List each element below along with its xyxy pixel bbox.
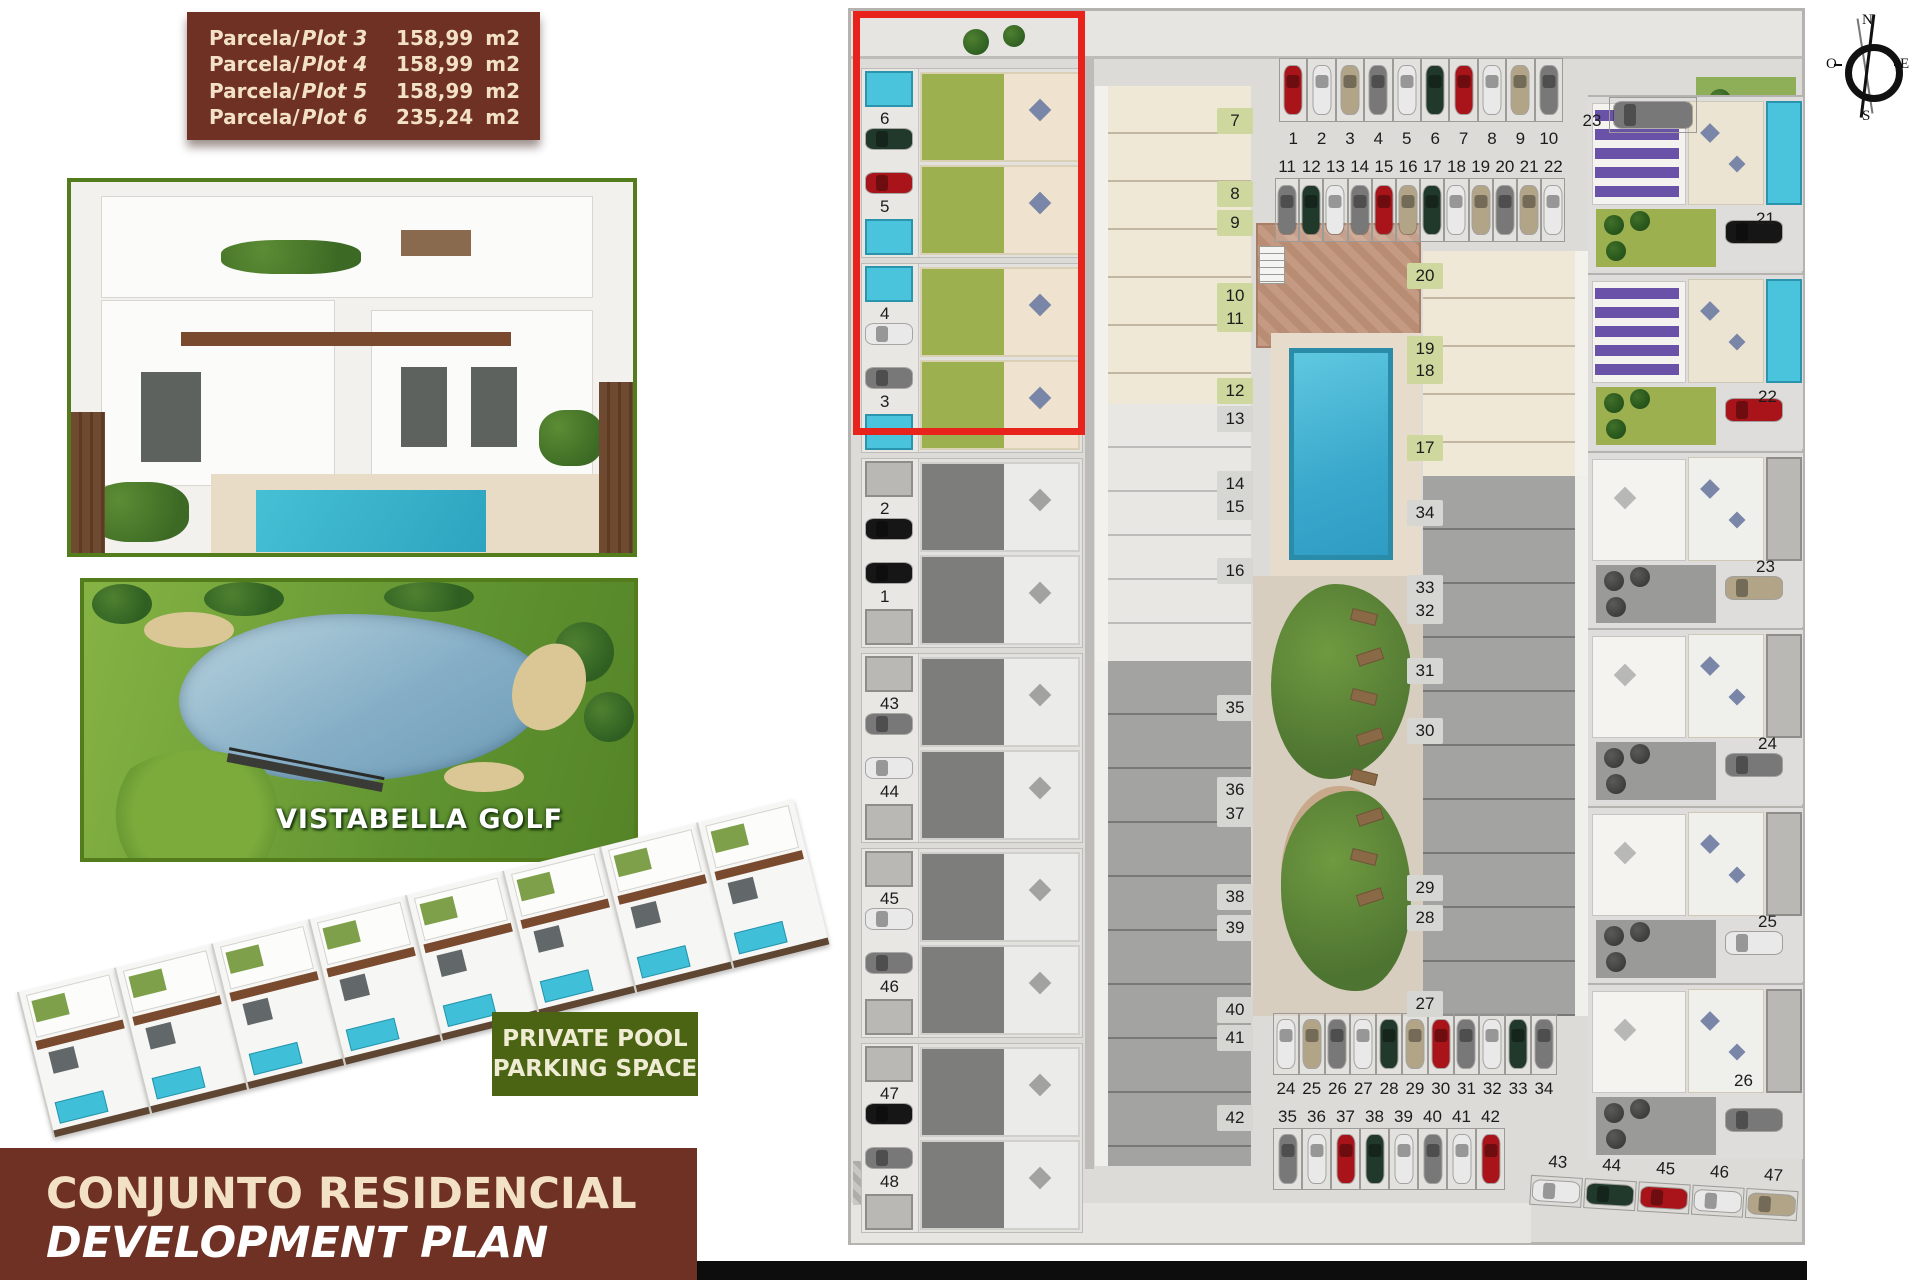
unit-building (920, 1047, 1080, 1137)
parking-stall (1421, 58, 1449, 122)
tree-icon (1606, 774, 1626, 794)
parking-stall (1331, 1128, 1360, 1190)
car-icon (1355, 1020, 1372, 1068)
car-icon (1453, 1135, 1470, 1183)
plot-number: 6 (880, 109, 889, 129)
tree-icon (1606, 241, 1626, 261)
plot-number: 43 (880, 694, 899, 714)
plot-size-unit: m2 (485, 79, 520, 104)
plot-number: 47 (880, 1084, 899, 1104)
parking-number: 2 (1307, 129, 1335, 149)
title-block: CONJUNTO RESIDENCIAL DEVELOPMENT PLAN (0, 1148, 697, 1280)
car-icon (1694, 1190, 1741, 1213)
plot-pool (865, 851, 913, 887)
sand-bunker (444, 762, 524, 792)
table-icon (1614, 664, 1637, 687)
villa-roof (1592, 281, 1686, 383)
parking-number: 23 (1577, 111, 1607, 131)
plot-size-value: 158,99 (396, 79, 473, 104)
table-icon (1700, 301, 1720, 321)
tree-icon (1630, 1099, 1650, 1119)
parking-stall (1493, 178, 1517, 242)
table-icon (1028, 1074, 1051, 1097)
plot-size-value: 235,24 (396, 105, 473, 130)
table-icon (1729, 867, 1746, 884)
brown-fence (71, 412, 105, 557)
parking-number: 3 (1336, 129, 1364, 149)
roof-garden (922, 464, 1004, 550)
shrub-area (1271, 584, 1411, 779)
car-icon (1448, 186, 1465, 234)
parking-stall (1307, 58, 1335, 122)
legend-row: Parcela/Plot 3158,99m2 (209, 26, 520, 51)
parking-number: 42 (1476, 1107, 1505, 1127)
plot-number: 28 (1407, 905, 1443, 931)
aerial-window (339, 974, 370, 1002)
palm-tree (539, 410, 603, 466)
car-icon (1472, 186, 1489, 234)
plot-pool (865, 1046, 913, 1082)
parking-number: 7 (1449, 129, 1477, 149)
plot-number: 18 (1407, 358, 1443, 384)
badge-line2: PARKING SPACE (493, 1056, 697, 1082)
pergola-slats (1595, 364, 1679, 375)
pergola-slats (1595, 148, 1679, 159)
table-icon (1028, 582, 1051, 605)
villa-roof (1592, 991, 1686, 1093)
parking-stall (1478, 58, 1506, 122)
tree-icon (1630, 211, 1650, 231)
parking-number: 20 (1493, 157, 1517, 177)
roof-garden (922, 854, 1004, 940)
car-icon (1279, 186, 1296, 234)
parking-number: 16 (1396, 157, 1420, 177)
tree-icon (1606, 952, 1626, 972)
pergola-slats (1595, 326, 1679, 337)
parking-row-43-47: 4344454647 (1527, 1151, 1803, 1241)
plot-number: 27 (1407, 991, 1443, 1017)
parking-number: 33 (1505, 1079, 1531, 1099)
plot-garden (1596, 742, 1716, 800)
plot-number: 26 (1734, 1071, 1753, 1091)
aerial-window (145, 1022, 176, 1050)
parking-number: 19 (1469, 157, 1493, 177)
parking-number: 43 (1530, 1151, 1585, 1174)
tree-icon (204, 582, 284, 616)
communal-pool (1289, 348, 1393, 560)
aerial-window (728, 877, 759, 905)
pergola-slats (1595, 167, 1679, 178)
parking-space: 47 (1743, 1164, 1801, 1241)
legend-row: Parcela/Plot 4158,99m2 (209, 52, 520, 77)
car-icon (866, 519, 912, 539)
parking-stall (1350, 1013, 1376, 1075)
golf-course-photo: VISTABELLA GOLF (80, 578, 638, 862)
parking-stall (1360, 1128, 1389, 1190)
parking-stall (1323, 178, 1347, 242)
bottom-black-strip (697, 1261, 1807, 1280)
plot-number: 23 (1756, 557, 1775, 577)
parking-number: 38 (1360, 1107, 1389, 1127)
car-icon (1540, 66, 1557, 114)
villa-render-photo (67, 178, 637, 557)
plot-number: 12 (1217, 378, 1253, 404)
compass-west: O (1826, 56, 1837, 73)
car-icon (1726, 1109, 1782, 1131)
parking-stall (1299, 178, 1323, 242)
aerial-window (533, 925, 564, 953)
parking-number: 39 (1389, 1107, 1418, 1127)
roof-furniture (401, 230, 471, 256)
villa-terrace (1688, 101, 1764, 205)
legend-row: Parcela/Plot 6235,24m2 (209, 105, 520, 130)
parking-stall (1745, 1188, 1799, 1221)
parking-stall (1336, 58, 1364, 122)
aerial-window (48, 1046, 79, 1074)
roof-terrace (1004, 752, 1078, 838)
aerial-window (436, 949, 467, 977)
roof-terrace (1004, 557, 1078, 643)
car-icon (1726, 932, 1782, 954)
car-icon (1351, 186, 1368, 234)
car-icon (866, 714, 912, 734)
roof-terrace (1004, 659, 1078, 745)
plot-pool (865, 656, 913, 692)
car-icon (1726, 577, 1782, 599)
table-icon (1700, 1011, 1720, 1031)
row-houses-27-34 (1423, 476, 1588, 1016)
tree-icon (1606, 597, 1626, 617)
plot-pool (1766, 634, 1802, 738)
parking-number: 5 (1393, 129, 1421, 149)
villa-26: 26 (1588, 983, 1803, 1159)
parking-stall (1609, 97, 1697, 133)
tree-icon (1630, 744, 1650, 764)
parking-number: 30 (1428, 1079, 1454, 1099)
parking-number: 45 (1638, 1157, 1693, 1180)
parking-space: 46 (1689, 1161, 1747, 1238)
villa-22: 22 (1588, 273, 1803, 449)
parking-number: 9 (1506, 129, 1534, 149)
unit-building (920, 852, 1080, 942)
table-icon (1700, 123, 1720, 143)
stone-pillar (335, 332, 373, 484)
plot-pool (1766, 812, 1802, 916)
parking-stall (1517, 178, 1541, 242)
parking-number: 8 (1478, 129, 1506, 149)
car-icon (1640, 1187, 1687, 1210)
parking-number: 4 (1364, 129, 1392, 149)
driveway-strip: 21 (862, 459, 919, 647)
plot-pool (1766, 279, 1802, 383)
plot-number: 2 (880, 499, 889, 519)
plot-label: Parcela/ (209, 52, 300, 77)
car-icon (1521, 186, 1538, 234)
plot-size-unit: m2 (485, 52, 520, 77)
car-icon (866, 758, 912, 778)
villa-terrace (1688, 634, 1764, 738)
plot-garden (1596, 565, 1716, 623)
car-icon (1303, 1020, 1320, 1068)
car-icon (866, 953, 912, 973)
car-icon (1512, 66, 1529, 114)
plot-pool (865, 461, 913, 497)
unit-building (920, 462, 1080, 552)
parking-stall (1325, 1013, 1351, 1075)
roof-terrace (1004, 947, 1078, 1033)
plot-size-unit: m2 (485, 26, 520, 51)
parking-number: 25 (1299, 1079, 1325, 1099)
plot-pool (865, 804, 913, 840)
parking-number: 40 (1418, 1107, 1447, 1127)
plot-number: 31 (1407, 658, 1443, 684)
parking-number: 24 (1273, 1079, 1299, 1099)
golf-course-label: VISTABELLA GOLF (276, 804, 563, 835)
plot-number: 9 (1217, 210, 1253, 236)
parking-space: 43 (1527, 1151, 1585, 1228)
site-plan: 6543214344454647487891011121314151635363… (848, 8, 1805, 1245)
table-icon (1700, 479, 1720, 499)
compass-rose: N S E O (1826, 12, 1910, 124)
window (141, 372, 201, 462)
plot-number: 22 (1758, 387, 1777, 407)
table-icon (1729, 689, 1746, 706)
car-icon (1533, 1180, 1580, 1203)
compass-north: N (1862, 12, 1873, 29)
car-icon (1424, 1135, 1441, 1183)
parking-number: 18 (1444, 157, 1468, 177)
roof-garden (922, 947, 1004, 1033)
parking-number: 14 (1348, 157, 1372, 177)
plot-number: 45 (880, 889, 899, 909)
row-houses-17-20 (1423, 251, 1588, 476)
car-icon (1586, 1183, 1633, 1206)
title-english: DEVELOPMENT PLAN (46, 1218, 697, 1268)
car-icon (1381, 1020, 1398, 1068)
parking-number: 6 (1421, 129, 1449, 149)
roof-terrace (1004, 464, 1078, 550)
parking-number: 36 (1302, 1107, 1331, 1127)
aerial-window (242, 998, 273, 1026)
plot-size-table: Parcela/Plot 3158,99m2Parcela/Plot 4158,… (187, 12, 540, 140)
plot-size-value: 158,99 (396, 52, 473, 77)
car-icon (1398, 66, 1415, 114)
plot-number: 37 (1217, 801, 1253, 827)
car-icon (1482, 1135, 1499, 1183)
plot-label: Parcela/ (209, 26, 300, 51)
table-icon (1028, 777, 1051, 800)
parking-stall (1541, 178, 1565, 242)
car-icon (1277, 1020, 1294, 1068)
plot-number: 21 (1756, 209, 1775, 229)
table-icon (1729, 512, 1746, 529)
row-houses-13-16 (1095, 404, 1251, 661)
table-icon (1729, 156, 1746, 173)
car-icon (1496, 186, 1513, 234)
shrub-area (1281, 791, 1411, 991)
table-icon (1700, 834, 1720, 854)
plot-size-unit: m2 (485, 105, 520, 130)
parking-stall (1364, 58, 1392, 122)
car-icon (866, 909, 912, 929)
parking-stall (1372, 178, 1396, 242)
tree-icon (1606, 1129, 1626, 1149)
table-icon (1614, 1019, 1637, 1042)
parking-stall (1469, 178, 1493, 242)
unit-building (920, 1140, 1080, 1230)
villa-roof (1592, 459, 1686, 561)
highlight-plots-3-6 (853, 11, 1085, 435)
unit-building (920, 945, 1080, 1035)
plot-number: 30 (1407, 718, 1443, 744)
plot-garden (1596, 387, 1716, 445)
villa-25: 25 (1588, 806, 1803, 982)
villa-left-volume (101, 300, 335, 486)
car-icon (1424, 186, 1441, 234)
parking-stall (1505, 1013, 1531, 1075)
parking-stall (1476, 1128, 1505, 1190)
parking-stall (1299, 1013, 1325, 1075)
car-icon (1313, 66, 1330, 114)
car-icon (1341, 66, 1358, 114)
parking-stall (1393, 58, 1421, 122)
parking-number: 15 (1372, 157, 1396, 177)
table-icon (1028, 489, 1051, 512)
plot-pool (1766, 457, 1802, 561)
parking-number: 31 (1454, 1079, 1480, 1099)
pergola-slats (1595, 307, 1679, 318)
car-icon (1370, 66, 1387, 114)
villa-terrace (1688, 279, 1764, 383)
car-icon (866, 1104, 912, 1124)
parking-number: 11 (1275, 157, 1299, 177)
car-icon (1329, 1020, 1346, 1068)
parking-number: 1 (1279, 129, 1307, 149)
plot-number: 15 (1217, 494, 1253, 520)
driveway-strip: 4748 (862, 1044, 919, 1232)
car-icon (1427, 66, 1444, 114)
plot-name: Plot 6 (302, 105, 368, 130)
car-icon (1455, 66, 1472, 114)
unit-pair-47-48: 4748 (861, 1043, 1083, 1233)
plot-pool (1766, 989, 1802, 1093)
plot-garden (1596, 1097, 1716, 1155)
parking-number: 47 (1746, 1164, 1801, 1187)
roof-garden (922, 557, 1004, 643)
car-icon (1545, 186, 1562, 234)
parking-stall (1583, 1178, 1637, 1211)
wall (1085, 59, 1094, 1169)
car-icon (1406, 1020, 1423, 1068)
plot-number: 8 (1217, 181, 1253, 207)
parking-number: 13 (1323, 157, 1347, 177)
parking-stall (1444, 178, 1468, 242)
plot-number: 4 (880, 304, 889, 324)
parking-stall (1275, 178, 1299, 242)
plot-name: Plot 4 (302, 52, 368, 77)
legend-row: Parcela/Plot 5158,99m2 (209, 79, 520, 104)
car-icon (1337, 1135, 1354, 1183)
car-icon (1395, 1135, 1412, 1183)
parking-space: 44 (1581, 1154, 1639, 1231)
roof-garden (922, 1049, 1004, 1135)
table-icon (1028, 1167, 1051, 1190)
driveway-strip: 4344 (862, 654, 919, 842)
plot-number: 42 (1217, 1105, 1253, 1131)
villa-terrace (1688, 812, 1764, 916)
row-houses-35-42 (1095, 661, 1251, 1166)
plot-number: 11 (1217, 306, 1253, 332)
car-icon (1614, 102, 1692, 128)
parking-stall (1348, 178, 1372, 242)
plot-number: 24 (1758, 734, 1777, 754)
parking-stall (1279, 58, 1307, 122)
car-icon (866, 563, 912, 583)
car-icon (866, 1148, 912, 1168)
tree-icon (584, 692, 634, 742)
unit-pair-43-44: 4344 (861, 653, 1083, 843)
parking-number: 17 (1420, 157, 1444, 177)
table-icon (1700, 656, 1720, 676)
parking-stall (1637, 1181, 1691, 1214)
parking-stall (1396, 178, 1420, 242)
parking-number: 22 (1541, 157, 1565, 177)
car-icon (1375, 186, 1392, 234)
plot-number: 41 (1217, 1025, 1253, 1051)
tree-icon (1604, 215, 1624, 235)
pergola-slats (1595, 345, 1679, 356)
car-icon (1484, 1020, 1501, 1068)
plot-number: 25 (1758, 912, 1777, 932)
plot-number: 17 (1407, 435, 1443, 461)
villa-terrace (1688, 457, 1764, 561)
parking-number: 12 (1299, 157, 1323, 177)
plot-label: Parcela/ (209, 105, 300, 130)
tree-icon (1604, 571, 1624, 591)
compass-east: E (1900, 56, 1909, 73)
plot-number: 36 (1217, 777, 1253, 803)
communal-garden (1253, 576, 1423, 1016)
pergola-slats (1595, 288, 1679, 299)
roof-garden (922, 1142, 1004, 1228)
table-icon (1614, 842, 1637, 865)
parking-stall (1302, 1128, 1331, 1190)
plot-size-value: 158,99 (396, 26, 473, 51)
plot-number: 32 (1407, 598, 1443, 624)
car-icon (1726, 754, 1782, 776)
tree-icon (1630, 389, 1650, 409)
tree-icon (1630, 922, 1650, 942)
car-icon (1458, 1020, 1475, 1068)
parking-number: 35 (1273, 1107, 1302, 1127)
tree-icon (1604, 393, 1624, 413)
plot-number: 35 (1217, 695, 1253, 721)
car-icon (1535, 1020, 1552, 1068)
parking-stall (1420, 178, 1444, 242)
car-icon (1285, 66, 1302, 114)
brochure-page: Parcela/Plot 3158,99m2Parcela/Plot 4158,… (0, 0, 1920, 1280)
tree-icon (1630, 567, 1650, 587)
villa-roof (1592, 814, 1686, 916)
plot-number: 44 (880, 782, 899, 802)
villa-23: 23 (1588, 451, 1803, 627)
stairs-icon (1259, 246, 1285, 284)
plot-number: 13 (1217, 406, 1253, 432)
plot-pool (865, 999, 913, 1035)
plot-number: 16 (1217, 558, 1253, 584)
car-icon (1327, 186, 1344, 234)
table-icon (1028, 879, 1051, 902)
